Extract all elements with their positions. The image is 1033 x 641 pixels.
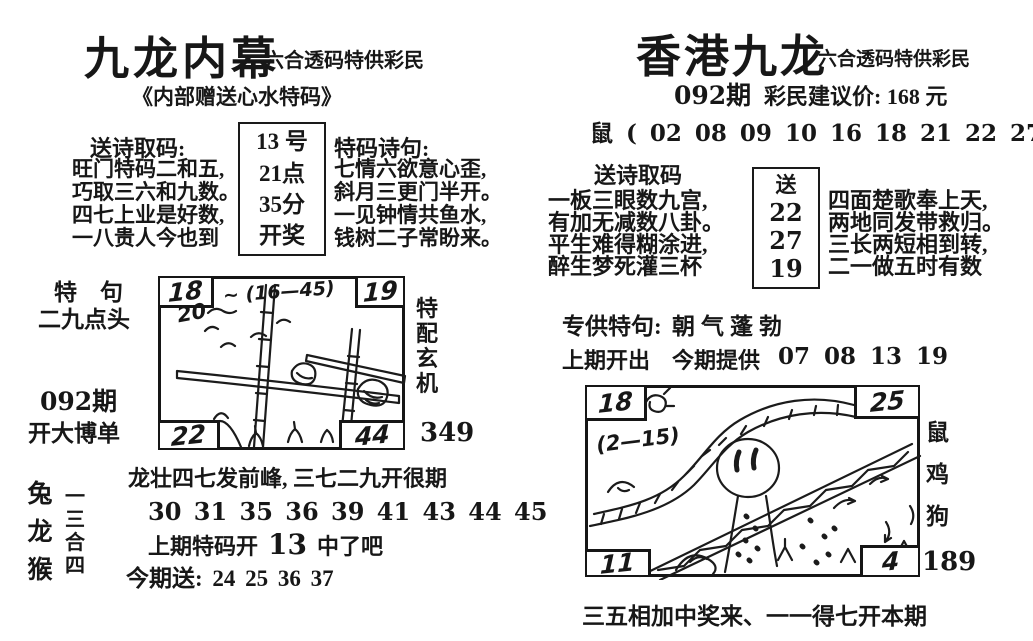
corner-number: 25	[870, 385, 906, 418]
corner-number-box: 4	[860, 545, 918, 575]
right-page-subtitle: 六合透码特供彩民	[818, 44, 970, 71]
mystery-side-label: 特配玄机	[414, 296, 440, 396]
bamboo-sketch-box: 18 19 22 44 ~ (16—45) 20	[158, 276, 405, 450]
zodiac-numbers-row: 鼠 ( 02 08 09 10 16 18 21 22 27 ) 鸡	[590, 114, 1033, 148]
caterpillar-sketch-box: 18 25 11 4 (2—15)	[585, 385, 920, 577]
draw-time-box: 13 号 21点 35分 开奖	[238, 122, 326, 256]
corner-number: 18	[598, 386, 634, 419]
left-poem-line: 巧取三六和九数。	[72, 181, 240, 204]
left-issue-note: 开大博单	[28, 414, 120, 448]
special-phrase-label: 专供特句:	[562, 307, 662, 341]
draw-minute: 35分	[240, 189, 324, 220]
corner-number: 44	[355, 419, 391, 452]
corner-number: 19	[363, 275, 399, 308]
gift-box-number: 22	[754, 199, 818, 227]
draw-number: 13 号	[240, 126, 324, 158]
draw-hour: 21点	[240, 158, 324, 189]
prev-open-label: 上期开出	[562, 343, 650, 375]
special-poem-line: 斜月三更门半开。	[334, 181, 502, 204]
corner-number-box: 25	[854, 387, 918, 419]
right-issue: 092期	[674, 76, 751, 112]
gift-numbers-line: 今期送: 24 25 36 37	[126, 559, 334, 593]
combo-column: 一三合四	[64, 486, 86, 578]
gift-box-number: 19	[754, 255, 818, 283]
left-page-tagline: 《内部赠送心水特码》	[132, 81, 342, 111]
corner-number: 4	[881, 546, 899, 577]
left-page-title: 九龙内幕	[84, 22, 280, 87]
right-poem-left-line: 平生难得糊涂进,	[548, 234, 724, 256]
right-caption: 三五相加中奖来、一一得七开本期	[582, 597, 927, 631]
draw-label: 开奖	[240, 220, 324, 251]
left-side-number: 349	[420, 418, 474, 448]
corner-number-box: 11	[587, 549, 651, 575]
right-poem-heading: 送诗取码	[594, 158, 682, 190]
special-phrase-value: 朝气蓬勃	[672, 307, 788, 341]
corner-number-box: 22	[160, 420, 220, 448]
gift-box-label: 送	[754, 171, 818, 199]
corner-number: 11	[600, 547, 636, 580]
right-poem-right-line: 两地同发带救归。	[828, 212, 1004, 234]
prev-result-suffix: 中了吧	[317, 534, 383, 559]
special-poem-line: 钱树二子常盼来。	[334, 227, 502, 250]
left-poem-line: 一八贵人今也到	[72, 227, 240, 250]
left-poem-line: 旺门特码二和五,	[72, 158, 240, 181]
left-issue: 092期	[40, 382, 117, 418]
zodiac-column-left: 兔龙猴	[26, 476, 54, 590]
gift-numbers-box: 送 22 27 19	[752, 167, 820, 289]
prev-result-prefix: 上期特码开	[148, 534, 258, 559]
price-line: 彩民建议价: 168 元	[764, 79, 947, 111]
left-page-subtitle: 六合透码特供彩民	[264, 44, 424, 73]
corner-number-box: 18	[587, 387, 647, 421]
now-offer-label: 今期提供	[672, 343, 760, 375]
right-poem-right-line: 二一做五时有数	[828, 256, 1004, 278]
corner-number: 22	[171, 419, 207, 452]
corner-number-box: 19	[355, 278, 403, 308]
teju-value: 二九点头	[38, 300, 130, 334]
zodiac-column-right: 鼠鸡狗	[924, 412, 951, 538]
right-poem-left-line: 有加无减数八卦。	[548, 212, 724, 234]
left-poem-line: 四七上业是好数,	[72, 204, 240, 227]
special-poem-line: 七情六欲意心歪,	[334, 158, 502, 181]
bottom-verse-line: 龙壮四七发前峰, 三七二九开很期	[128, 461, 447, 493]
right-poem-left-line: 醉生梦死灌三杯	[548, 256, 724, 278]
special-poem-line: 一见钟情共鱼水,	[334, 204, 502, 227]
right-poem-right-line: 三长两短相到转,	[828, 234, 1004, 256]
tip-sheet: 九龙内幕 六合透码特供彩民 《内部赠送心水特码》 送诗取码: 旺门特码二和五, …	[0, 0, 1033, 641]
sketch-annotation-number: 20	[175, 299, 208, 328]
now-offer-numbers: 07 08 13 19	[778, 343, 948, 370]
gift-box-number: 27	[754, 227, 818, 255]
prev-result-number: 13	[268, 528, 307, 561]
right-poem-left-line: 一板三眼数九宫,	[548, 190, 724, 212]
corner-number-box: 44	[339, 420, 403, 448]
numbers-row: 30 31 35 36 39 41 43 44 45	[148, 497, 547, 526]
right-side-number: 189	[922, 547, 976, 577]
right-poem-right-line: 四面楚歌奉上天,	[828, 190, 1004, 212]
